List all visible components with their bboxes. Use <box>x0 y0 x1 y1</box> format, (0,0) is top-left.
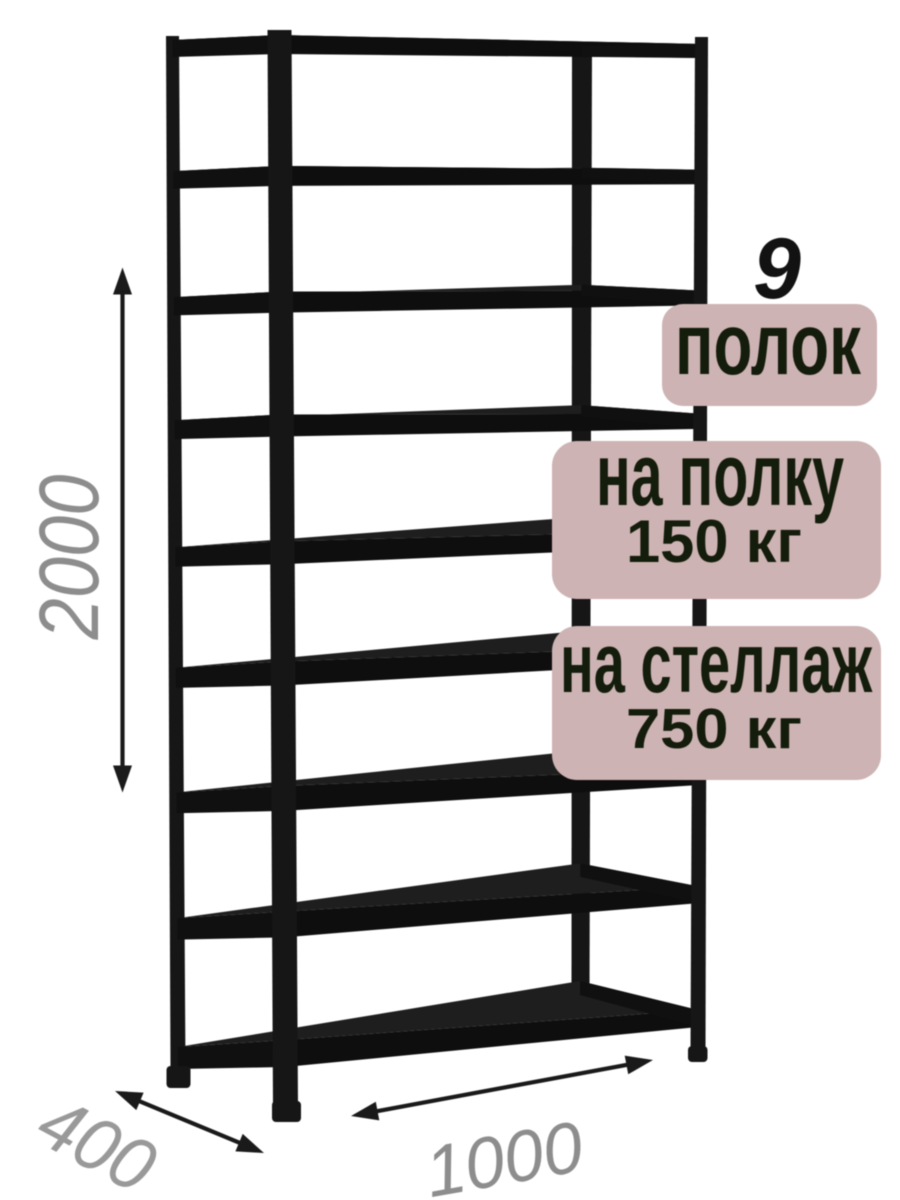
svg-text:150 кг: 150 кг <box>626 508 802 575</box>
svg-text:750 кг: 750 кг <box>626 697 802 761</box>
svg-text:полок: полок <box>675 296 862 393</box>
svg-text:2000: 2000 <box>22 474 116 640</box>
